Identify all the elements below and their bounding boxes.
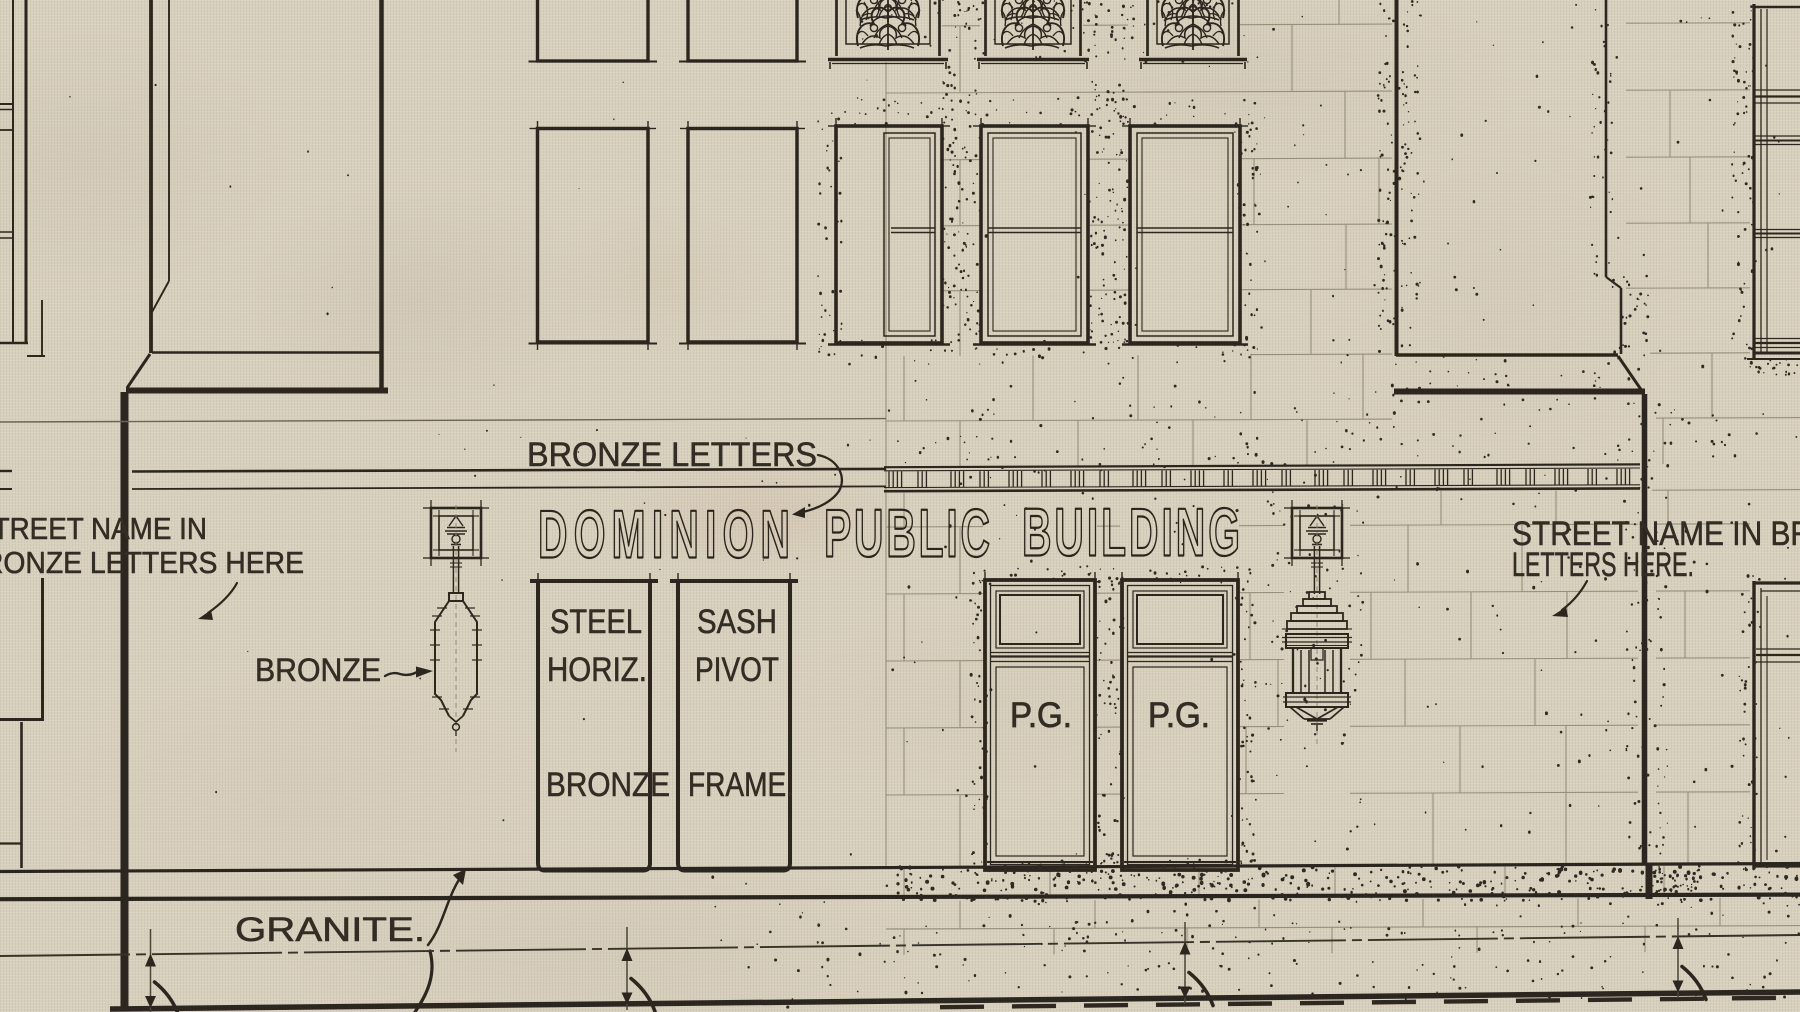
svg-text:P.G.: P.G. (1010, 696, 1072, 735)
svg-text:SASH: SASH (697, 603, 777, 641)
svg-text:BRONZE: BRONZE (546, 766, 670, 804)
svg-text:BRONZE LETTERS HERE: BRONZE LETTERS HERE (0, 545, 304, 580)
svg-text:GRANITE.: GRANITE. (235, 911, 425, 949)
svg-text:BRONZE: BRONZE (255, 652, 381, 688)
svg-text:LETTERS HERE.: LETTERS HERE. (1512, 546, 1694, 584)
svg-text:P.G.: P.G. (1148, 696, 1210, 735)
svg-text:FRAME.: FRAME. (688, 766, 794, 804)
svg-text:HORIZ.: HORIZ. (547, 651, 647, 689)
svg-text:PIVOT: PIVOT (695, 651, 779, 689)
svg-text:PUBLIC: PUBLIC (824, 495, 990, 571)
svg-text:STEEL: STEEL (550, 603, 642, 641)
svg-text:DOMINION: DOMINION (538, 496, 790, 572)
svg-text:STREET NAME IN: STREET NAME IN (0, 511, 207, 546)
svg-text:BRONZE LETTERS: BRONZE LETTERS (527, 436, 817, 474)
svg-text:BUILDING: BUILDING (1022, 494, 1240, 570)
